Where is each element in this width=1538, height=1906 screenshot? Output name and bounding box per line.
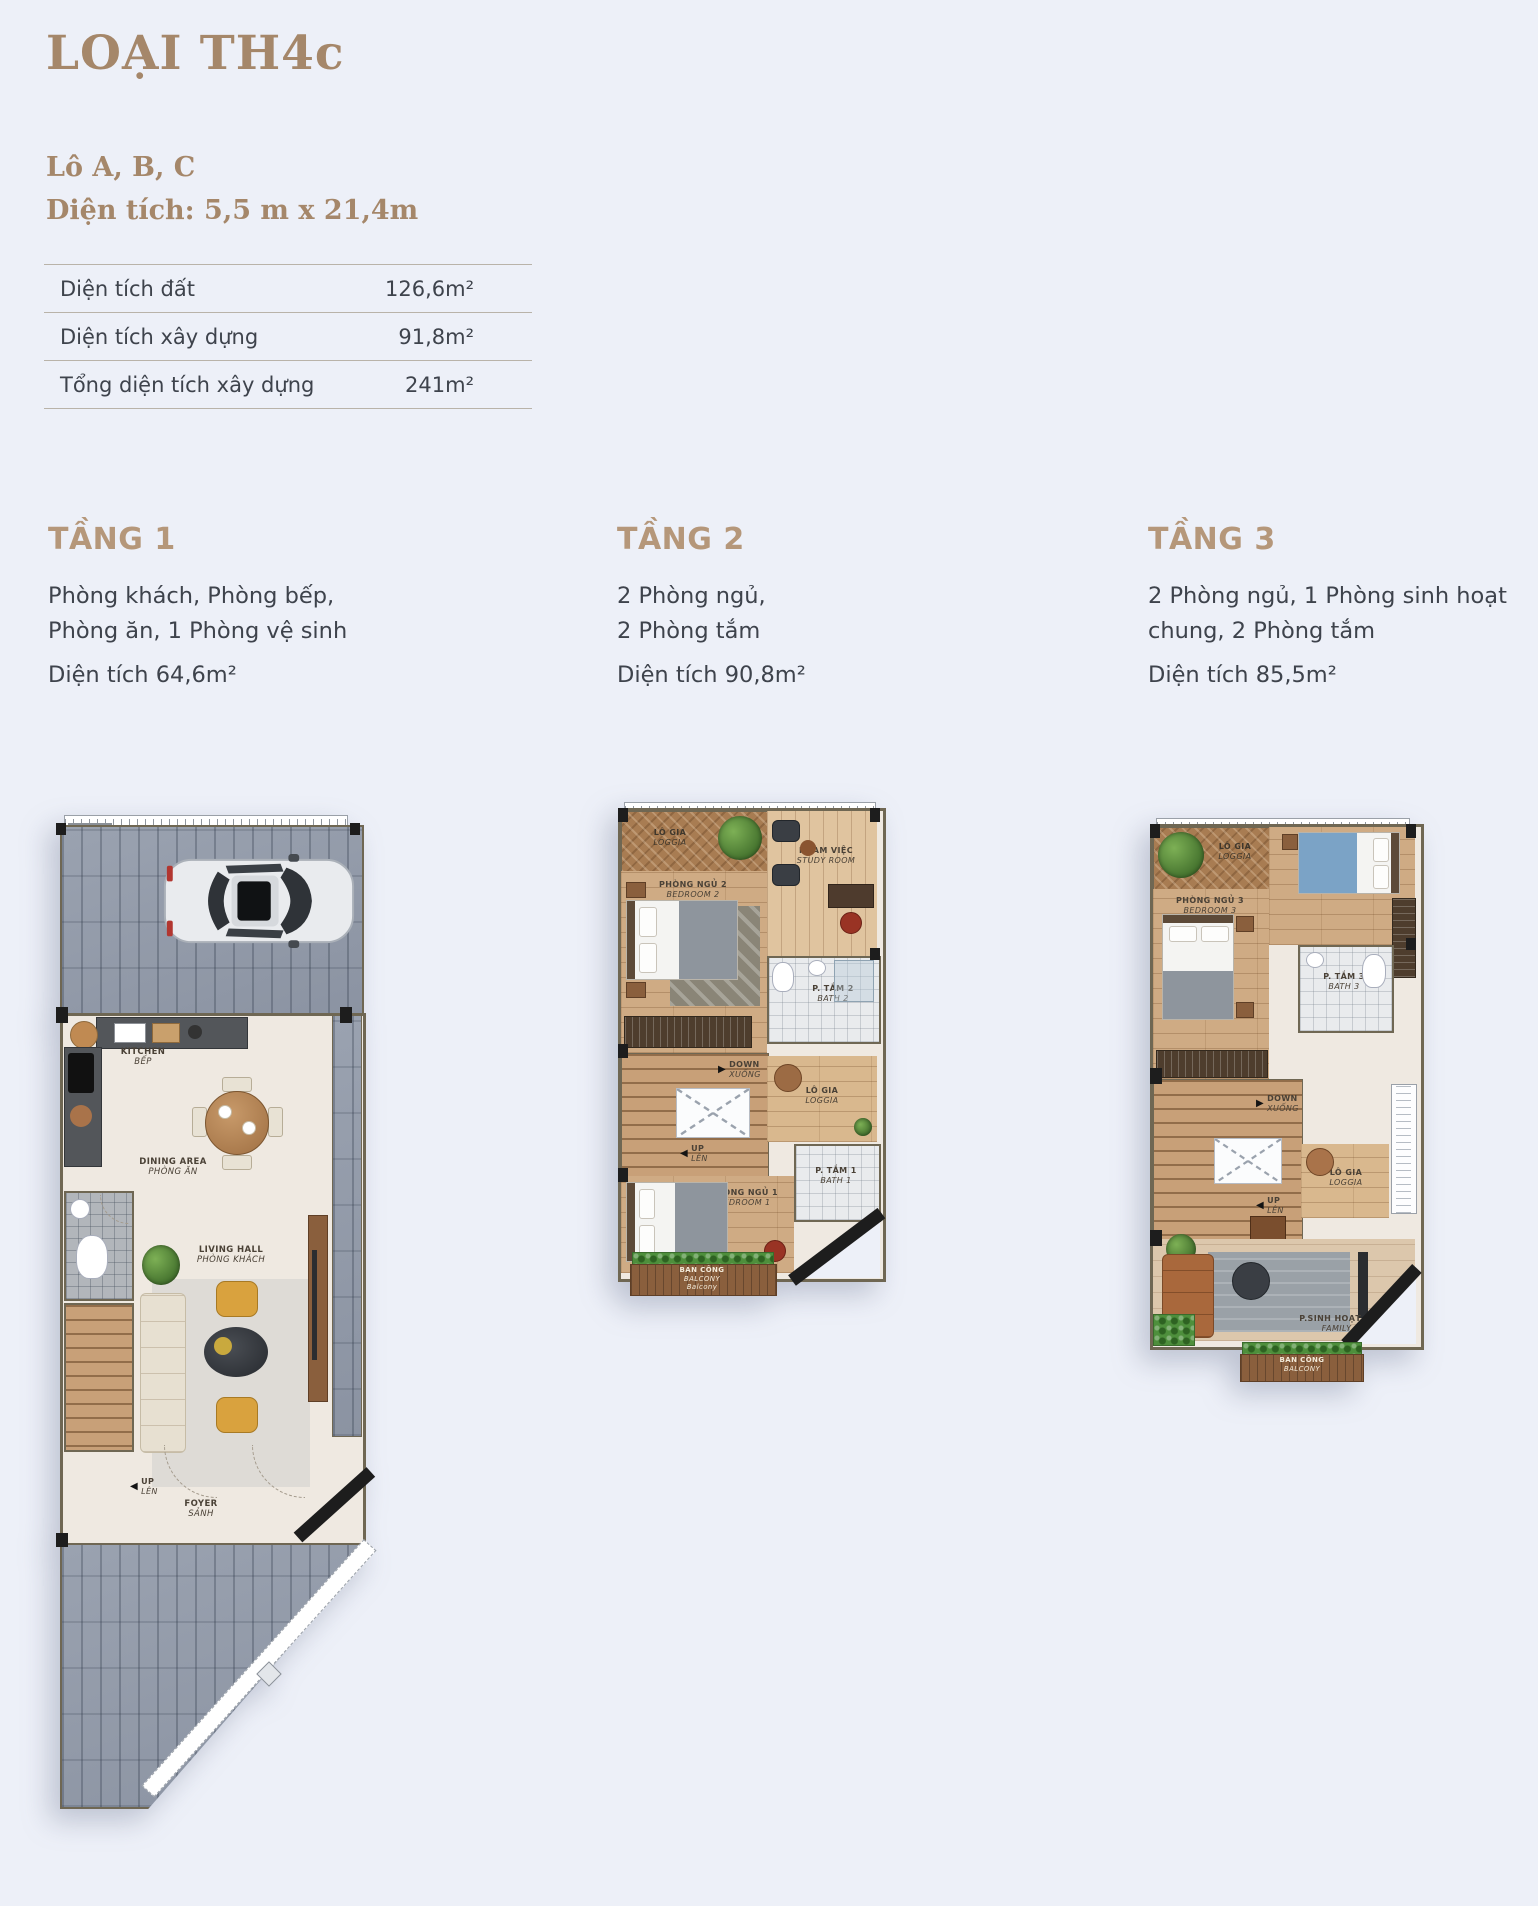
lounge-chair bbox=[772, 820, 800, 842]
label-primary: LÔ GIA bbox=[654, 828, 687, 837]
headboard bbox=[627, 1183, 635, 1261]
loggia-right-label: LÔ GIA LOGGIA bbox=[790, 1086, 854, 1106]
floor2-area: Diện tích 90,8m² bbox=[617, 662, 1047, 688]
loggia-top-label: LÔ GIA LOGGIA bbox=[1206, 842, 1264, 862]
label-stack: UP LÊN bbox=[141, 1477, 158, 1497]
row-value: 91,8m² bbox=[398, 325, 474, 349]
column-post bbox=[56, 1007, 68, 1023]
tv bbox=[1358, 1252, 1368, 1318]
dining-label: DINING AREA PHÒNG ĂN bbox=[118, 1157, 228, 1177]
label-secondary: BALCONY bbox=[660, 1275, 744, 1284]
rattan-chair bbox=[1306, 1148, 1334, 1176]
label-primary: UP bbox=[691, 1144, 704, 1153]
desk bbox=[828, 884, 874, 908]
label-primary: P. TẮM 3 bbox=[1323, 972, 1364, 981]
stair-landing bbox=[676, 1088, 750, 1138]
headboard bbox=[1163, 915, 1233, 923]
column-post bbox=[870, 948, 880, 960]
toilet bbox=[76, 1235, 108, 1279]
tv bbox=[312, 1250, 317, 1360]
floor3-area: Diện tích 85,5m² bbox=[1148, 662, 1538, 688]
label-secondary: BATH 1 bbox=[800, 1176, 872, 1186]
label-primary: LIVING HALL bbox=[199, 1245, 263, 1255]
balcony-label: BAN CÔNG BALCONY Balcony bbox=[660, 1266, 744, 1292]
side-path bbox=[332, 1015, 362, 1437]
label-secondary: BẾP bbox=[108, 1057, 178, 1067]
down-label: ▶ DOWN XUỐNG bbox=[718, 1060, 761, 1080]
swivel-chair bbox=[1232, 1262, 1270, 1300]
blanket bbox=[679, 901, 737, 979]
column-post bbox=[618, 1168, 628, 1182]
label-secondary: XUỐNG bbox=[729, 1070, 761, 1080]
dining-table bbox=[205, 1091, 269, 1155]
label-secondary: PHÒNG ĂN bbox=[118, 1167, 228, 1177]
column-post bbox=[618, 808, 628, 822]
floorplan-1: KITCHEN BẾP DINING AREA PHÒNG ĂN LIVING … bbox=[56, 795, 360, 1807]
column-post bbox=[870, 808, 880, 822]
kitchen-label: KITCHEN BẾP bbox=[108, 1047, 178, 1067]
floor2-column: TẦNG 2 2 Phòng ngủ, 2 Phòng tắm Diện tíc… bbox=[617, 522, 1047, 688]
label-secondary: LOGGIA bbox=[790, 1096, 854, 1106]
desk-chair-red bbox=[840, 912, 862, 934]
study-label: P.LÀM VIỆC STUDY ROOM bbox=[778, 846, 874, 866]
down-arrow-icon: ▶ bbox=[1256, 1099, 1264, 1109]
up-arrow-icon: ◀ bbox=[1256, 1201, 1264, 1211]
up-arrow-icon: ◀ bbox=[680, 1149, 688, 1159]
palm-plant bbox=[1158, 832, 1204, 878]
nightstand bbox=[626, 982, 646, 998]
column-post bbox=[618, 1044, 628, 1058]
shower bbox=[834, 960, 874, 1002]
label-primary: UP bbox=[141, 1477, 154, 1486]
headboard bbox=[1391, 833, 1399, 893]
closet bbox=[1250, 1216, 1286, 1240]
wardrobe bbox=[1156, 1050, 1268, 1078]
floor3-heading: TẦNG 3 bbox=[1148, 522, 1538, 557]
plate bbox=[218, 1105, 232, 1119]
blanket bbox=[1299, 833, 1357, 893]
bath1-label: P. TẮM 1 BATH 1 bbox=[800, 1166, 872, 1186]
stair-landing bbox=[1214, 1138, 1282, 1184]
line2: Phòng ăn, 1 Phòng vệ sinh bbox=[48, 618, 347, 644]
column-post bbox=[56, 1533, 68, 1547]
table-row: Tổng diện tích xây dựng 241m² bbox=[44, 360, 532, 409]
label-stack: UP LÊN bbox=[691, 1144, 708, 1164]
foyer-label: FOYER SẢNH bbox=[166, 1499, 236, 1519]
label-stack: UP LÊN bbox=[1267, 1196, 1284, 1216]
floor1-heading: TẦNG 1 bbox=[48, 522, 478, 557]
label-tertiary: Balcony bbox=[660, 1283, 744, 1292]
up-label: ◀ UP LÊN bbox=[1256, 1196, 1284, 1216]
planter bbox=[1153, 1314, 1195, 1346]
label-secondary: LÊN bbox=[1267, 1206, 1284, 1216]
label-secondary: LÊN bbox=[141, 1487, 158, 1497]
row-label: Diện tích đất bbox=[60, 277, 195, 301]
area-spec-table: Diện tích đất 126,6m² Diện tích xây dựng… bbox=[44, 264, 532, 409]
side-table bbox=[800, 840, 816, 856]
column-post bbox=[1150, 1230, 1162, 1246]
label-stack: DOWN XUỐNG bbox=[1267, 1094, 1299, 1114]
armchair-yellow bbox=[216, 1281, 258, 1317]
bath-sink bbox=[1306, 952, 1324, 968]
down-arrow-icon: ▶ bbox=[718, 1065, 726, 1075]
down-label: ▶ DOWN XUỐNG bbox=[1256, 1094, 1299, 1114]
column-post bbox=[1406, 824, 1416, 838]
label-secondary: LOGGIA bbox=[640, 838, 700, 848]
line1: Phòng khách, Phòng bếp, bbox=[48, 583, 334, 609]
floor1-area: Diện tích 64,6m² bbox=[48, 662, 478, 688]
bowl bbox=[70, 1105, 92, 1127]
line1: 2 Phòng ngủ, bbox=[617, 583, 766, 609]
label-primary: LÔ GIA bbox=[1330, 1168, 1363, 1177]
blanket bbox=[1163, 971, 1233, 1019]
line1: 2 Phòng ngủ, 1 Phòng sinh hoạt bbox=[1148, 583, 1507, 609]
floor1-column: TẦNG 1 Phòng khách, Phòng bếp, Phòng ăn,… bbox=[48, 522, 478, 688]
floor3-column: TẦNG 3 2 Phòng ngủ, 1 Phòng sinh hoạt ch… bbox=[1148, 522, 1538, 688]
bath-sink bbox=[808, 960, 826, 976]
nightstand bbox=[1236, 916, 1254, 932]
drying-area bbox=[1391, 1084, 1417, 1214]
column-post bbox=[340, 1007, 352, 1023]
nightstand bbox=[1236, 1002, 1254, 1018]
kitchen-sink bbox=[114, 1023, 146, 1043]
floor1-rooms: Phòng khách, Phòng bếp, Phòng ăn, 1 Phòn… bbox=[48, 579, 478, 649]
label-primary: PHÒNG NGỦ 3 bbox=[1176, 896, 1244, 905]
label-primary: BAN CÔNG bbox=[680, 1266, 725, 1274]
blanket bbox=[675, 1183, 727, 1261]
label-primary: DINING AREA bbox=[139, 1157, 206, 1167]
label-primary: DOWN bbox=[1267, 1094, 1298, 1103]
column-post bbox=[1150, 1068, 1162, 1084]
floorplan-2: LÔ GIA LOGGIA P.LÀM VIỆC STUDY ROOM PHÒN… bbox=[618, 788, 880, 1296]
label-primary: LÔ GIA bbox=[806, 1086, 839, 1095]
label-secondary: SẢNH bbox=[166, 1509, 236, 1519]
up-arrow-icon: ◀ bbox=[130, 1482, 138, 1492]
row-value: 241m² bbox=[405, 373, 474, 397]
bed bbox=[626, 1182, 728, 1262]
table-row: Diện tích đất 126,6m² bbox=[44, 264, 532, 312]
pillow bbox=[639, 907, 657, 937]
wardrobe bbox=[624, 1016, 752, 1048]
pillow bbox=[1201, 926, 1229, 942]
row-label: Diện tích xây dựng bbox=[60, 325, 258, 349]
label-secondary: LOGGIA bbox=[1206, 852, 1264, 862]
headboard bbox=[627, 901, 635, 979]
back-yard bbox=[60, 1543, 364, 1809]
dining-chair bbox=[222, 1077, 252, 1092]
column-post bbox=[1406, 938, 1416, 950]
label-stack: DOWN XUỐNG bbox=[729, 1060, 761, 1080]
label-primary: KITCHEN bbox=[121, 1047, 166, 1057]
pillow bbox=[1169, 926, 1197, 942]
pillow bbox=[639, 943, 657, 973]
loggia-top-label: LÔ GIA LOGGIA bbox=[640, 828, 700, 848]
palm-plant bbox=[718, 816, 762, 860]
column-post bbox=[350, 823, 360, 835]
bedroom2-label: PHÒNG NGỦ 2 BEDROOM 2 bbox=[646, 880, 740, 900]
pillow bbox=[1373, 865, 1389, 889]
size-label: Diện tích: 5,5 m x 21,4m bbox=[46, 189, 418, 232]
wc-sink bbox=[70, 1199, 90, 1219]
bed bbox=[1298, 832, 1400, 894]
toilet bbox=[1362, 954, 1386, 988]
fruit-table bbox=[70, 1021, 98, 1049]
toilet bbox=[772, 962, 794, 992]
label-secondary: XUỐNG bbox=[1267, 1104, 1299, 1114]
tv-console bbox=[308, 1215, 328, 1402]
label-primary: LÔ GIA bbox=[1219, 842, 1252, 851]
floor2-heading: TẦNG 2 bbox=[617, 522, 1047, 557]
stairs-floor1 bbox=[64, 1303, 134, 1452]
balcony-label: BAN CÔNG BALCONY bbox=[1264, 1356, 1340, 1373]
label-secondary: PHÒNG KHÁCH bbox=[166, 1255, 296, 1265]
label-primary: PHÒNG NGỦ 2 bbox=[659, 880, 727, 889]
armchair-yellow bbox=[216, 1397, 258, 1433]
column-post bbox=[1150, 824, 1160, 838]
column-post bbox=[56, 823, 66, 835]
lounge-chair bbox=[774, 1064, 802, 1092]
label-primary: BAN CÔNG bbox=[1280, 1356, 1325, 1364]
label-secondary: BEDROOM 2 bbox=[646, 890, 740, 900]
label-primary: UP bbox=[1267, 1196, 1280, 1205]
line2: chung, 2 Phòng tắm bbox=[1148, 618, 1375, 644]
floorplan-3: LÔ GIA LOGGIA PHÒNG NGỦ 3 BEDROOM 3 PHÒN… bbox=[1150, 806, 1418, 1391]
bed bbox=[1162, 914, 1234, 1020]
row-label: Tổng diện tích xây dựng bbox=[60, 373, 314, 397]
cutting-board bbox=[152, 1023, 180, 1043]
pot bbox=[188, 1025, 202, 1039]
label-secondary: LÊN bbox=[691, 1154, 708, 1164]
living-label: LIVING HALL PHÒNG KHÁCH bbox=[166, 1245, 296, 1265]
brochure-page: LOẠI TH4c Lô A, B, C Diện tích: 5,5 m x … bbox=[0, 0, 1538, 1906]
label-secondary: LOGGIA bbox=[1316, 1178, 1376, 1188]
lot-and-size: Lô A, B, C Diện tích: 5,5 m x 21,4m bbox=[46, 146, 418, 232]
row-value: 126,6m² bbox=[385, 277, 474, 301]
label-secondary: BALCONY bbox=[1264, 1365, 1340, 1374]
plant bbox=[854, 1118, 872, 1136]
line2: 2 Phòng tắm bbox=[617, 618, 760, 644]
label-primary: FOYER bbox=[184, 1499, 217, 1509]
bedroom3-label: PHÒNG NGỦ 3 BEDROOM 3 bbox=[1166, 896, 1254, 916]
nightstand bbox=[1282, 834, 1298, 850]
bed bbox=[626, 900, 738, 980]
floor2-rooms: 2 Phòng ngủ, 2 Phòng tắm bbox=[617, 579, 1047, 649]
up-label: ◀ UP LÊN bbox=[680, 1144, 708, 1164]
sofa bbox=[140, 1293, 186, 1453]
coffee-table bbox=[204, 1327, 268, 1377]
label-primary: DOWN bbox=[729, 1060, 760, 1069]
nightstand bbox=[626, 882, 646, 898]
table-row: Diện tích xây dựng 91,8m² bbox=[44, 312, 532, 360]
pillow bbox=[639, 1225, 655, 1255]
floor3-rooms: 2 Phòng ngủ, 1 Phòng sinh hoạt chung, 2 … bbox=[1148, 579, 1538, 649]
plate bbox=[242, 1121, 256, 1135]
page-title: LOẠI TH4c bbox=[46, 26, 345, 81]
stove bbox=[68, 1053, 94, 1093]
car bbox=[161, 851, 357, 951]
label-primary: P. TẮM 1 bbox=[815, 1166, 856, 1175]
lot-label: Lô A, B, C bbox=[46, 146, 418, 189]
dining-chair bbox=[268, 1107, 283, 1137]
pillow bbox=[639, 1189, 655, 1219]
lounge-chair bbox=[772, 864, 800, 886]
up-label: ◀ UP LÊN bbox=[130, 1477, 158, 1497]
pillow bbox=[1373, 838, 1389, 862]
table-decor bbox=[214, 1337, 232, 1355]
